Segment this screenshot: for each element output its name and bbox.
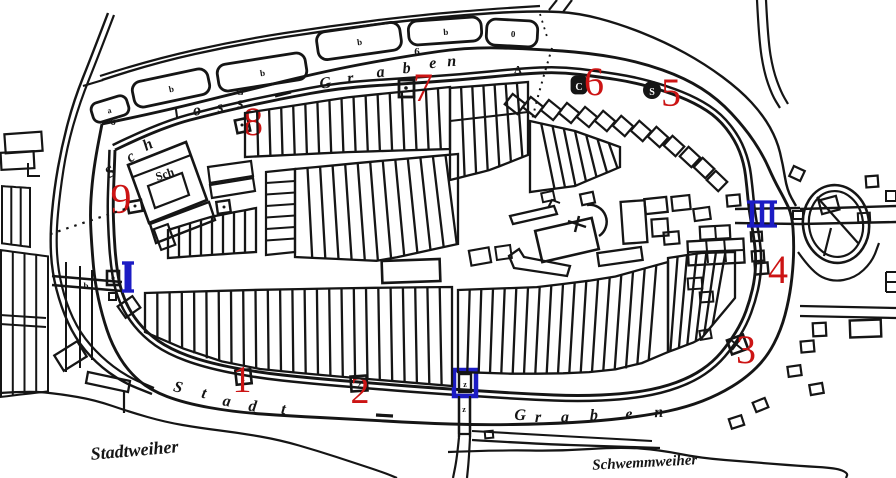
svg-text:6: 6	[110, 116, 116, 128]
svg-text:6: 6	[414, 46, 420, 58]
svg-text:n: n	[447, 53, 457, 70]
svg-text:4: 4	[768, 247, 788, 292]
svg-text:3: 3	[736, 327, 756, 372]
svg-text:z: z	[462, 405, 466, 414]
svg-text:A: A	[514, 64, 522, 76]
svg-text:a: a	[561, 409, 569, 426]
svg-text:7: 7	[413, 65, 433, 110]
svg-text:5: 5	[661, 70, 681, 115]
svg-text:e: e	[625, 406, 633, 423]
svg-text:b: b	[83, 281, 88, 291]
svg-text:z: z	[463, 380, 467, 389]
svg-text:9: 9	[111, 177, 132, 223]
svg-text:6: 6	[584, 59, 604, 104]
svg-text:n: n	[654, 404, 664, 421]
svg-text:S: S	[649, 87, 655, 98]
svg-text:b: b	[402, 60, 411, 78]
svg-text:b: b	[443, 27, 449, 37]
svg-text:r: r	[535, 409, 542, 426]
svg-text:C: C	[575, 82, 582, 93]
svg-text:G: G	[514, 407, 527, 424]
svg-text:b: b	[590, 407, 598, 424]
